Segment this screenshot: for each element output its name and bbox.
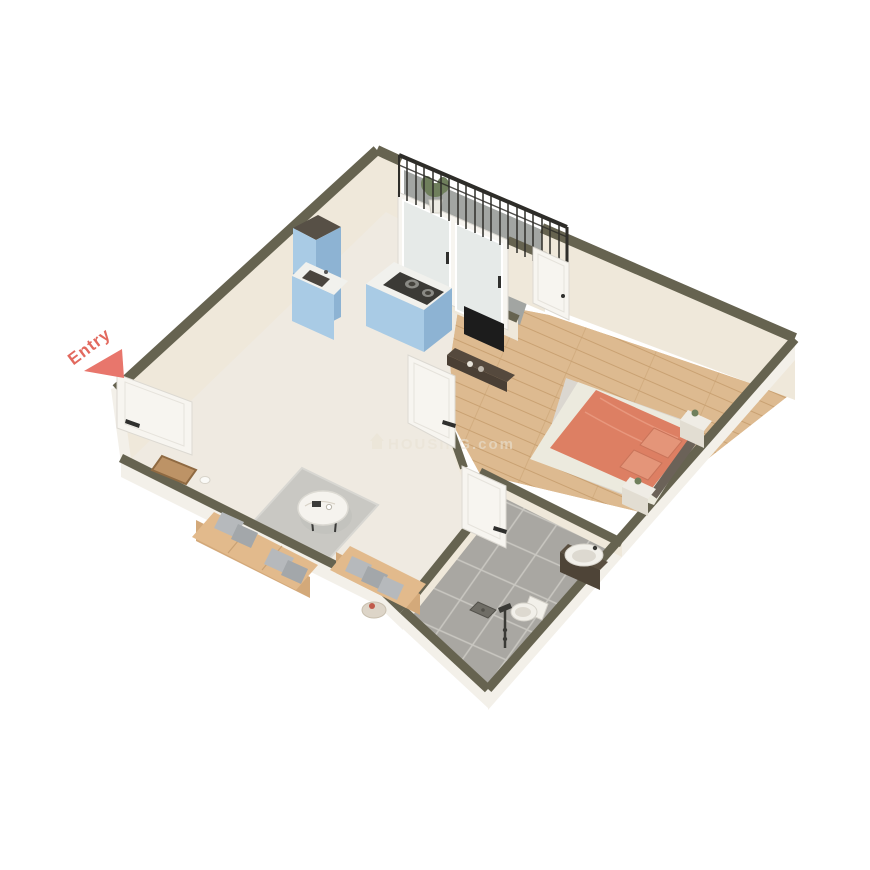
table-decor <box>312 501 321 507</box>
floorplan-3d-render: HOUSING.com <box>0 0 870 870</box>
slider-handle-left <box>446 252 449 264</box>
faucet <box>324 270 328 274</box>
floorplan-image: HOUSING.com <box>0 0 870 870</box>
slider-handle-right <box>498 276 501 288</box>
small-floor-item <box>200 477 210 484</box>
plant-pot <box>429 200 442 213</box>
entry-annotation: Entry <box>64 324 124 378</box>
basin-faucet <box>593 546 597 550</box>
side-table <box>362 602 386 618</box>
table-cup <box>326 504 331 509</box>
